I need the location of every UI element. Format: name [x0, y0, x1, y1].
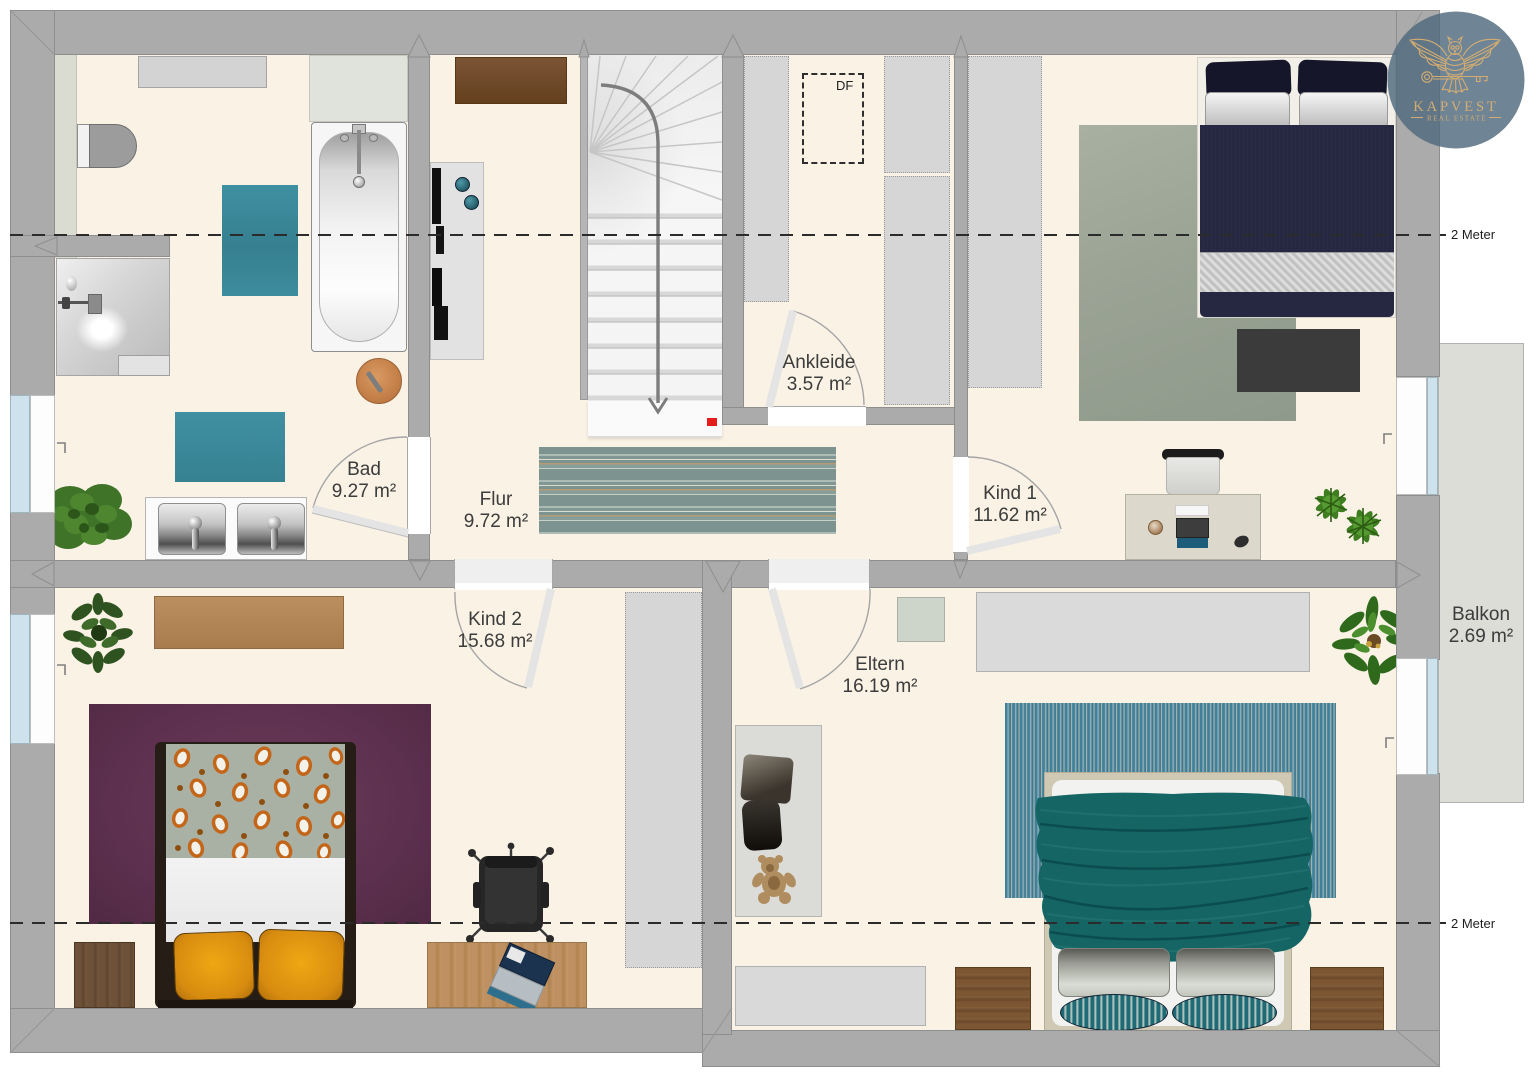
- svg-text:KAPVEST: KAPVEST: [1413, 99, 1499, 115]
- svg-text:REAL ESTATE: REAL ESTATE: [1427, 115, 1487, 123]
